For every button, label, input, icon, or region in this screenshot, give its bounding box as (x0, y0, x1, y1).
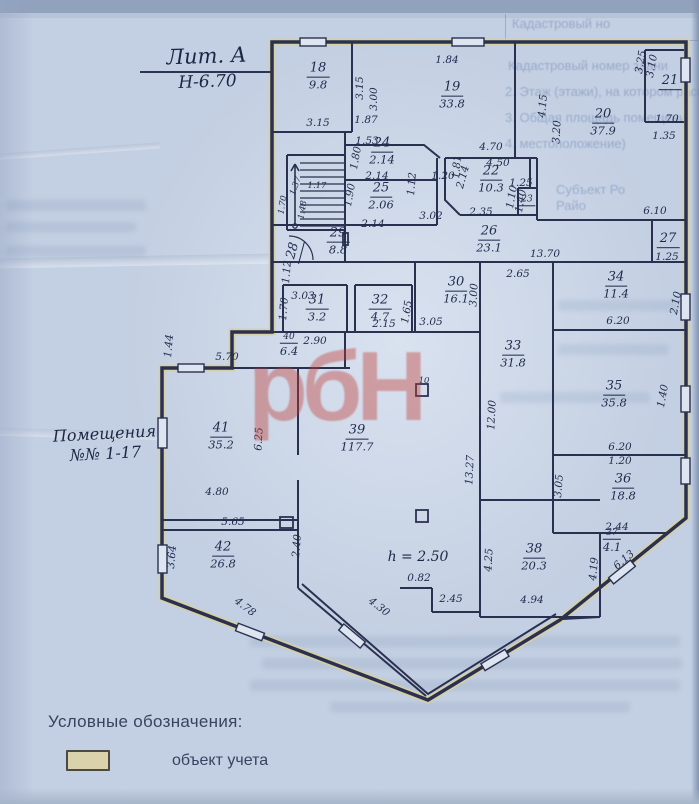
legend-swatch (66, 750, 110, 771)
title-block: Лит. А Н-6.70 (141, 42, 273, 95)
premises-note-line2: №№ 1-17 (69, 442, 141, 465)
ceiling-height-note: h = 2.50 (388, 549, 449, 565)
windows (158, 38, 690, 671)
legend: Условные обозначения: объект учета (48, 712, 268, 771)
floor-plan-drawing (0, 0, 699, 804)
object-highlight (162, 42, 686, 700)
scanned-floor-plan-page: { "title_block": { "litera": "Лит. А", "… (0, 0, 699, 804)
litera-label: Лит. А (160, 42, 253, 71)
outer-walls (162, 42, 686, 700)
legend-item-label: объект учета (172, 752, 268, 770)
legend-title: Условные обозначения: (48, 712, 268, 732)
columns (280, 233, 428, 528)
door-arc (289, 236, 313, 260)
interior-walls (162, 42, 686, 696)
premises-note: Помещения №№ 1-17 (39, 421, 171, 468)
stairs (291, 163, 345, 228)
title-underline (140, 71, 272, 73)
